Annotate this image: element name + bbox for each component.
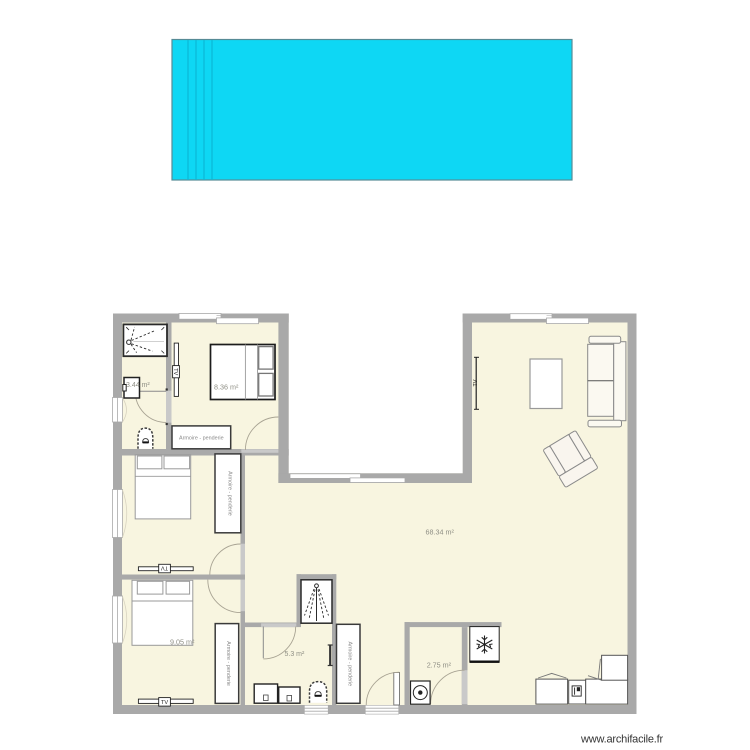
svg-text:TV: TV — [473, 379, 479, 386]
svg-text:2.75 m²: 2.75 m² — [427, 661, 452, 670]
svg-text:5.3 m²: 5.3 m² — [285, 651, 306, 658]
svg-text:TV: TV — [172, 368, 178, 375]
svg-text:3.44 m²: 3.44 m² — [126, 382, 150, 389]
svg-text:Armoire - penderie: Armoire - penderie — [225, 641, 231, 686]
svg-text:Armoire - penderie: Armoire - penderie — [227, 471, 233, 516]
svg-text:www.archifacile.fr: www.archifacile.fr — [580, 734, 664, 746]
svg-text:Armoire - penderie: Armoire - penderie — [346, 641, 352, 686]
svg-text:TV: TV — [161, 700, 168, 706]
svg-text:TV: TV — [161, 565, 168, 571]
svg-text:Armoire - penderie: Armoire - penderie — [179, 436, 224, 442]
svg-text:9.05 m²: 9.05 m² — [170, 637, 195, 646]
svg-text:68.34 m²: 68.34 m² — [426, 528, 455, 537]
svg-text:8.36 m²: 8.36 m² — [214, 383, 239, 392]
